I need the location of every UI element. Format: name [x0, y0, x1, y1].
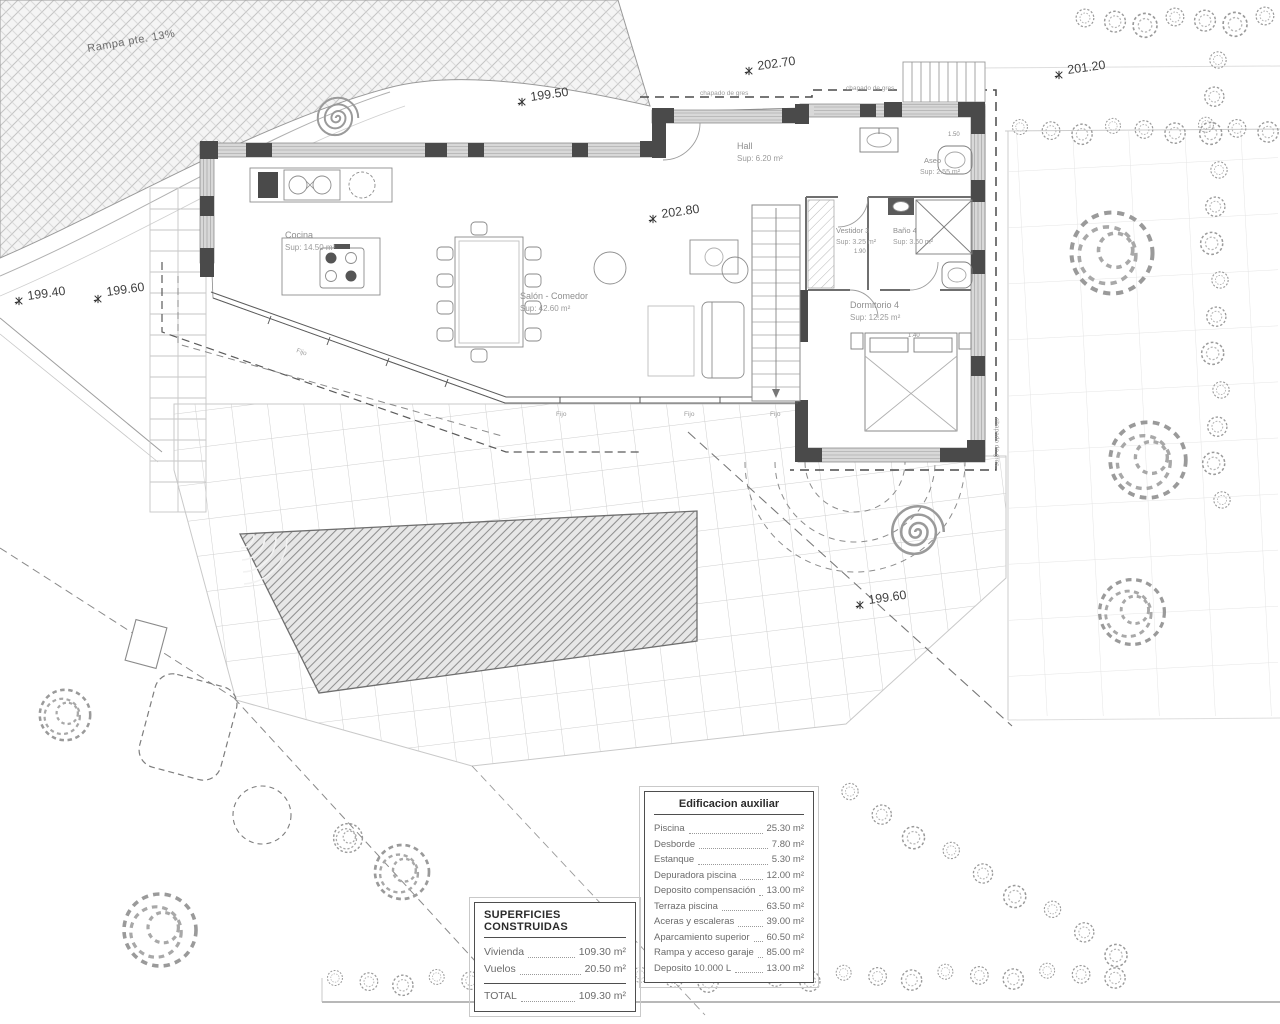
bush-icon	[360, 973, 378, 991]
bush-icon	[1044, 901, 1060, 917]
stairs	[752, 205, 800, 401]
bush-icon	[393, 975, 413, 995]
closet-hatch	[808, 200, 834, 288]
svg-text:Cocina: Cocina	[285, 230, 313, 240]
svg-text:Sup: 3.60 m²: Sup: 3.60 m²	[893, 239, 934, 246]
bush-icon	[1105, 118, 1120, 133]
bush-icon	[1133, 13, 1157, 37]
bush-icon	[429, 969, 444, 984]
finish-label: chapado de gres	[846, 85, 895, 92]
bush-icon	[1210, 52, 1226, 68]
svg-text:Sup: 6.20 m²: Sup: 6.20 m²	[737, 154, 783, 163]
bush-icon	[971, 967, 989, 985]
bush-icon	[842, 783, 858, 799]
tree-icon	[40, 690, 90, 740]
table-row: Aceras y escaleras39.00 m²	[654, 914, 804, 930]
bush-icon	[1105, 11, 1126, 32]
finish-label: chapado de gres	[700, 90, 749, 97]
bush-icon	[1105, 968, 1125, 988]
bush-icon	[1004, 886, 1026, 908]
bush-icon	[836, 965, 851, 980]
tree-icon	[124, 894, 196, 966]
svg-text:Sup: 14.50 m²: Sup: 14.50 m²	[285, 243, 336, 252]
table-row: Piscina25.30 m²	[654, 821, 804, 837]
svg-text:Sup: 12.25 m²: Sup: 12.25 m²	[850, 313, 901, 322]
svg-text:199.40: 199.40	[26, 284, 66, 303]
bush-icon	[1076, 9, 1094, 27]
svg-text:Sup: 3.25 m²: Sup: 3.25 m²	[836, 239, 877, 246]
elevation-marker: 199.60	[94, 280, 145, 303]
bush-icon	[1205, 87, 1224, 106]
bush-icon	[869, 968, 887, 986]
table-row: Rampa y acceso garaje85.00 m²	[654, 945, 804, 961]
svg-text:199.50: 199.50	[529, 85, 569, 104]
svg-text:Hall: Hall	[737, 141, 753, 151]
svg-text:Salón - Comedor: Salón - Comedor	[520, 291, 588, 301]
table-row: Deposito compensación13.00 m²	[654, 883, 804, 899]
finish-label: chapado de gres	[993, 418, 1000, 467]
window-fixed-label: Fijo	[770, 411, 781, 418]
elevation-marker: 199.40	[15, 284, 66, 305]
bush-icon	[1040, 963, 1055, 978]
bush-icon	[1195, 10, 1216, 31]
svg-text:Baño 4: Baño 4	[893, 226, 917, 235]
entrance-steps	[903, 62, 985, 102]
bush-icon	[1223, 12, 1247, 36]
dimension-label: 1.50	[948, 132, 960, 138]
svg-text:Dormitorio 4: Dormitorio 4	[850, 300, 899, 310]
svg-text:Aseo: Aseo	[924, 156, 941, 165]
site-plan-drawing: Rampa pte. 13%	[0, 0, 1280, 1024]
bush-icon	[902, 827, 924, 849]
table-row: Terraza piscina63.50 m²	[654, 899, 804, 915]
window-fixed-label: Fijo	[684, 411, 695, 418]
bush-icon	[901, 970, 921, 990]
window-fixed-label: Fijo	[295, 347, 308, 357]
site-plan-page: { "plan": { "ramp_label": "Rampa pte. 13…	[0, 0, 1280, 1024]
bush-icon	[327, 971, 342, 986]
tree-icon	[375, 845, 429, 899]
bush-icon	[943, 842, 959, 858]
table-row: Aparcamiento superior60.50 m²	[654, 930, 804, 946]
table-row: Desborde7.80 m²	[654, 837, 804, 853]
elevation-marker: 199.50	[518, 85, 569, 106]
window-fixed-label: Fijo	[556, 411, 567, 418]
elevation-marker: 202.70	[745, 54, 796, 75]
dimension-label: 1.90	[854, 249, 866, 255]
tree-icon	[334, 824, 363, 853]
dimension-label: 1.40	[908, 333, 920, 339]
bush-icon	[1072, 966, 1090, 984]
bush-icon	[1003, 969, 1023, 989]
table-row: Depuradora piscina12.00 m²	[654, 868, 804, 884]
bush-icon	[1105, 944, 1127, 966]
bush-icon	[938, 964, 953, 979]
bush-icon	[872, 805, 891, 824]
auxiliary-table: Edificacion auxiliar Piscina25.30 m² Des…	[644, 791, 814, 983]
svg-text:199.60: 199.60	[105, 280, 145, 299]
table-total-row: TOTAL109.30 m²	[484, 983, 626, 1005]
superficies-table: SUPERFICIES CONSTRUIDAS Vivienda109.30 m…	[474, 902, 636, 1012]
table-row: Estanque5.30 m²	[654, 852, 804, 868]
auxiliary-table-title: Edificacion auxiliar	[654, 798, 804, 815]
elevation-marker: 201.20	[1055, 58, 1106, 79]
svg-text:Sup: 42.60 m²: Sup: 42.60 m²	[520, 304, 571, 313]
svg-text:202.70: 202.70	[756, 54, 796, 73]
table-row: Vuelos20.50 m²	[484, 961, 626, 978]
table-row: Vivienda109.30 m²	[484, 944, 626, 961]
svg-text:Vestidor 3: Vestidor 3	[836, 226, 869, 235]
bush-icon	[1256, 7, 1274, 25]
bush-icon	[1075, 923, 1094, 942]
superficies-table-title: SUPERFICIES CONSTRUIDAS	[484, 909, 626, 938]
bush-icon	[1166, 8, 1184, 26]
svg-text:201.20: 201.20	[1066, 58, 1106, 77]
table-row: Deposito 10.000 L13.00 m²	[654, 961, 804, 977]
bush-icon	[973, 864, 992, 883]
svg-text:Sup: 2.55 m²: Sup: 2.55 m²	[920, 169, 961, 176]
